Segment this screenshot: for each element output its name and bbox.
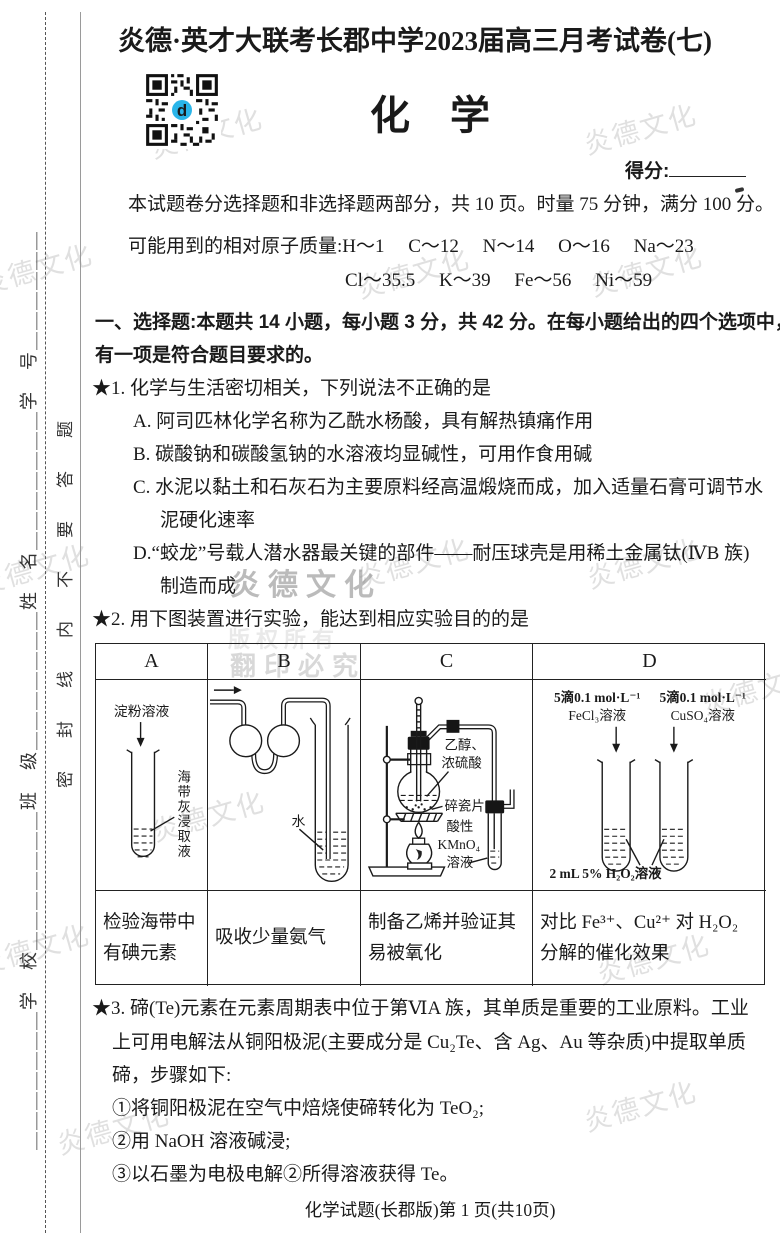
q3-step3: ③以石墨为电极电解②所得溶液获得 Te。 (112, 1164, 458, 1186)
exam-paper-page: 炎德文化 炎德文化 炎德文化 炎德文化 炎德文化 炎德文化 炎德文化 炎德文化 … (0, 0, 780, 1233)
label-starch-solution: 淀粉溶液 (114, 704, 170, 720)
arrow-head (612, 744, 620, 753)
flame (415, 822, 422, 838)
label-porcelain: 碎瓷片 (445, 798, 485, 813)
gas-in-arrow-head (234, 686, 242, 694)
caption-text: 分解的催化效果 (540, 939, 766, 970)
pointer-line (652, 839, 664, 865)
score-line: 得分: (625, 158, 746, 183)
q1-option-c-cont: 泥硬化速率 (160, 510, 255, 532)
q1-option-c: C. 水泥以黏土和石灰石为主要原料经高温煅烧而成，加入适量石膏可调节水 (133, 477, 763, 499)
q2-caption-c: 制备乙烯并验证其 易被氧化 (361, 891, 533, 986)
subject-title: 化 学 (95, 93, 765, 139)
q2-header-d: D (533, 644, 766, 680)
margin-student-fields: ＿＿＿＿＿＿＿学 校＿＿＿＿＿＿＿班 级＿＿＿＿＿＿＿姓 名＿＿＿＿＿＿＿学 号… (17, 170, 41, 1150)
q3-line1: ★3. 碲(Te)元素在元素周期表中位于第ⅥA 族，其单质是重要的工业原料。工业 (92, 998, 749, 1020)
lamp-base (408, 863, 432, 869)
arrow-head (137, 738, 145, 747)
caption-text: 吸收少量氨气 (215, 923, 360, 954)
round-flask (398, 771, 440, 813)
atomic-masses-line1: 可能用到的相对原子质量:H～1 C～12 N～14 O～16 Na～23 (128, 236, 694, 258)
q2-header-c: C (361, 644, 533, 680)
label-fecl3-line2: FeCl₃溶液 (568, 708, 626, 723)
q3-step1: ①将铜阳极泥在空气中焙烧使碲转化为 TeO₂; (112, 1098, 484, 1120)
q2-caption-b: 吸收少量氨气 (208, 891, 361, 986)
flask-stopper (408, 737, 430, 750)
q2-header-b: B (208, 644, 361, 680)
atomic-masses-line2: Cl～35.5 K～39 Fe～56 Ni～59 (345, 270, 652, 292)
stand-base (369, 867, 445, 876)
q2-diagram-a: 淀粉溶液 海 带 灰 浸 取 液 (96, 680, 208, 891)
kelp-char: 液 (178, 844, 191, 859)
q2-diagram-c: 乙醇、 浓硫酸 碎瓷片 酸性 KMnO₄ 溶液 (361, 680, 533, 891)
big-test-tube (315, 725, 348, 881)
score-label: 得分: (625, 161, 669, 182)
kelp-char: 取 (178, 829, 191, 844)
score-blank (669, 158, 746, 177)
q1-stem: ★1. 化学与生活密切相关，下列说法不正确的是 (92, 378, 491, 400)
q2-options-table: A B C D 淀粉溶液 海 带 灰 浸 取 (95, 643, 765, 985)
q3-step2: ②用 NaOH 溶液碱浸; (112, 1131, 290, 1153)
q2-header-a: A (96, 644, 208, 680)
q2-diagram-b: 水 (208, 680, 361, 891)
q2-stem: ★2. 用下图装置进行实验，能达到相应实验目的的是 (92, 609, 529, 631)
liquid-left (604, 829, 628, 864)
label-kelp-extract: 海 带 灰 浸 取 液 (178, 770, 191, 859)
arrow-head (670, 744, 678, 753)
section-one-heading-line1: 一、选择题:本题共 14 小题，每小题 3 分，共 42 分。在每小题给出的四个… (95, 312, 780, 334)
page-footer: 化学试题(长郡版)第 1 页(共10页) (95, 1200, 765, 1220)
label-fecl3-line1: 5滴0.1 mol·L⁻¹ (554, 689, 640, 705)
caption-text: 检验海带中 (103, 908, 207, 939)
caption-text: 对比 Fe³⁺、Cu²⁺ 对 H₂O₂ (540, 908, 766, 939)
apparatus-c-svg: 乙醇、 浓硫酸 碎瓷片 酸性 KMnO₄ 溶液 (361, 680, 532, 890)
label-ethanol: 乙醇、 (445, 737, 485, 753)
inlet-tube (210, 702, 244, 727)
label-sulfuric-acid: 浓硫酸 (442, 756, 483, 771)
kelp-char: 带 (178, 784, 191, 799)
liquid-right (662, 829, 686, 864)
q3-line2: 上可用电解法从铜阳极泥(主要成分是 Cu₂Te、含 Ag、Au 等杂质)中提取单… (112, 1032, 746, 1054)
q1-option-a: A. 阿司匹林化学名称为乙酰水杨酸，具有解热镇痛作用 (133, 411, 593, 433)
thermometer-bulb (415, 697, 422, 704)
q1-option-d: D.“蛟龙”号载人潜水器最关键的部件——耐压球壳是用稀土金属钛(ⅣB 族) (133, 543, 749, 565)
wire-gauze (396, 813, 443, 821)
q1-option-b: B. 碳酸钠和碳酸氢钠的水溶液均显碱性，可用作食用碱 (133, 444, 592, 466)
q2-caption-d: 对比 Fe³⁺、Cu²⁺ 对 H₂O₂ 分解的催化效果 (533, 891, 766, 986)
label-h2o2: 2 mL 5% H₂O₂溶液 (549, 865, 662, 881)
q1-option-d-cont: 制造而成 (160, 576, 236, 598)
label-cuso4-line2: CuSO₄溶液 (671, 708, 735, 723)
kelp-char: 浸 (178, 814, 191, 829)
label-acidic: 酸性 (447, 819, 474, 834)
exam-title: 炎德·英才大联考长郡中学2023届高三月考试卷(七) (85, 26, 745, 57)
kelp-char: 海 (178, 770, 191, 785)
apparatus-d-svg: 5滴0.1 mol·L⁻¹ FeCl₃溶液 5滴0.1 mol·L⁻¹ CuSO… (533, 680, 766, 890)
tube-connector (447, 720, 460, 733)
test-tube-left (602, 762, 630, 871)
seal-solid-line (80, 12, 81, 1233)
apparatus-a-svg: 淀粉溶液 海 带 灰 浸 取 液 (96, 680, 207, 890)
label-water: 水 (291, 814, 305, 830)
seal-dashed-line (45, 12, 46, 1233)
apparatus-b-svg: 水 (208, 680, 360, 890)
test-tube (132, 752, 155, 857)
receiver-stopper (485, 800, 504, 813)
watermark-brand: 炎德文化 (0, 233, 97, 302)
caption-text: 有碘元素 (103, 939, 207, 970)
q2-caption-a: 检验海带中 有碘元素 (96, 891, 208, 986)
section-one-heading-line2: 有一项是符合题目要求的。 (95, 345, 323, 367)
watermark-brand-bold: 炎德文化 (230, 560, 382, 604)
lamp-cap (413, 838, 425, 844)
kelp-char: 灰 (178, 799, 191, 814)
label-cuso4-line1: 5滴0.1 mol·L⁻¹ (660, 689, 746, 705)
pointer-line (626, 839, 640, 865)
seal-notice-text: 密封线内不要答题 (54, 368, 78, 788)
bulb-1 (230, 725, 262, 757)
intro-summary: 本试题卷分选择题和非选择题两部分，共 10 页。时量 75 分钟，满分 100 … (128, 194, 774, 216)
scan-speck (735, 187, 745, 193)
q2-diagram-d: 5滴0.1 mol·L⁻¹ FeCl₃溶液 5滴0.1 mol·L⁻¹ CuSO… (533, 680, 766, 891)
test-tube-right (660, 762, 688, 871)
watermark-brand: 炎德文化 (579, 1070, 701, 1139)
caption-text: 制备乙烯并验证其 (368, 908, 532, 939)
label-kmno4: KMnO₄ (438, 837, 481, 852)
caption-text: 易被氧化 (368, 939, 532, 970)
bulb-2 (268, 725, 300, 757)
q3-line3: 碲，步骤如下: (112, 1065, 231, 1087)
